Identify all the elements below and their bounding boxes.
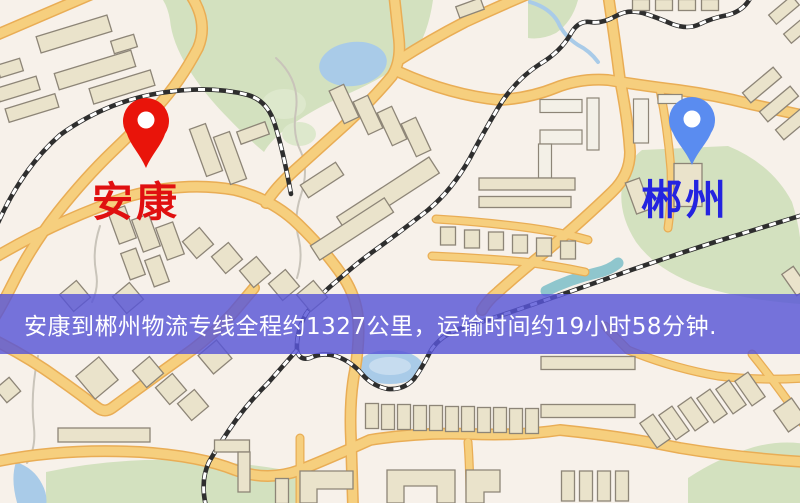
- building: [561, 241, 576, 259]
- building: [441, 227, 456, 245]
- building: [276, 479, 289, 503]
- building: [616, 471, 629, 501]
- building: [215, 440, 250, 452]
- building: [702, 0, 719, 11]
- building: [366, 404, 379, 429]
- building: [539, 144, 552, 178]
- building: [414, 406, 427, 431]
- building: [513, 235, 528, 253]
- building: [562, 471, 575, 501]
- building: [494, 408, 507, 433]
- building: [238, 452, 250, 492]
- building: [58, 428, 150, 442]
- route-info-banner: 安康到郴州物流专线全程约1327公里，运输时间约19小时58分钟.: [0, 294, 800, 354]
- building: [430, 406, 443, 431]
- map-canvas[interactable]: [0, 0, 800, 503]
- building: [541, 405, 635, 418]
- building: [479, 178, 575, 190]
- building: [382, 405, 395, 430]
- building: [598, 471, 611, 501]
- building: [540, 100, 582, 113]
- building: [633, 0, 650, 11]
- building: [634, 99, 649, 143]
- building: [489, 232, 504, 250]
- building: [398, 405, 411, 430]
- building: [537, 238, 552, 256]
- building: [679, 0, 696, 11]
- building: [541, 357, 635, 370]
- building: [465, 230, 480, 248]
- building: [540, 130, 582, 144]
- origin-city-label: 安康: [92, 182, 180, 223]
- building: [462, 407, 475, 432]
- building: [580, 471, 593, 501]
- building: [656, 0, 673, 11]
- building: [446, 407, 459, 432]
- building: [587, 98, 599, 150]
- building: [478, 408, 491, 433]
- destination-city-label: 郴州: [641, 180, 729, 221]
- map-screenshot: 安康 郴州 安康到郴州物流专线全程约1327公里，运输时间约19小时58分钟.: [0, 0, 800, 503]
- building: [526, 409, 539, 434]
- building: [479, 197, 571, 208]
- route-info-text: 安康到郴州物流专线全程约1327公里，运输时间约19小时58分钟.: [24, 307, 717, 341]
- building: [510, 409, 523, 434]
